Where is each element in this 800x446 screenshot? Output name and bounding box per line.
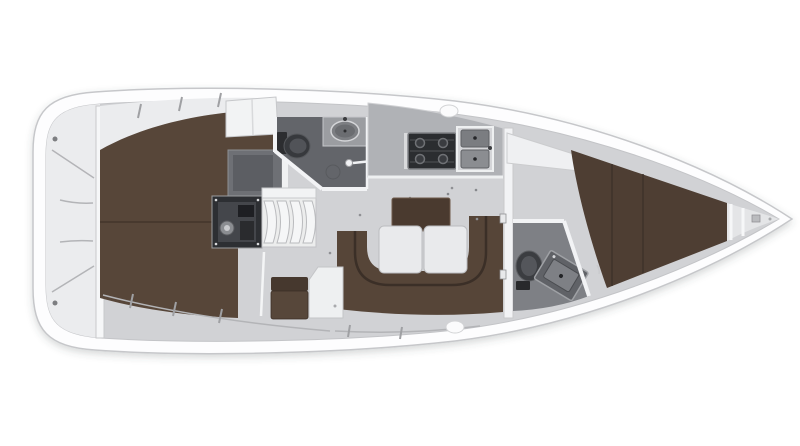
floor-dot-3 [476,218,479,221]
engine-bolt-1 [215,199,218,202]
engine-bolt-4 [257,243,260,246]
engine-bolt-2 [257,199,260,202]
galley-faucet [488,146,492,150]
stove-burner-3 [416,155,425,164]
engine-part-1 [238,205,254,217]
engine-pulley-hub [224,225,230,231]
door-hinge-bottom [500,270,506,279]
chainplate-notch-top [440,105,458,117]
door-hinge-top [500,214,506,223]
transom-storage [46,104,104,338]
nav-seat-cushion [271,291,308,319]
stove-burner-4 [439,155,448,164]
engine-compartment [212,196,262,248]
step-locker-knob [334,305,337,308]
stern-cleat-bottom [53,301,58,306]
companionway-sill [262,188,316,198]
cabinet-knob-3 [475,189,478,192]
galley-sink [457,127,493,171]
chainplate-notch-bottom [446,321,464,333]
cabinet-divider [252,99,253,135]
sink-drain-lower [473,157,477,161]
step-locker [309,267,343,318]
nav-seat [271,277,308,319]
floorplan-svg [0,0,800,446]
companionway-steps [262,188,316,247]
engine-part-2 [240,221,254,240]
windlass [752,215,760,222]
aft-head-shower [346,160,353,167]
aft-head-faucet [343,117,347,121]
aft-head-sink-drain [344,130,347,133]
floor-dot-2 [451,187,454,190]
yacht-floorplan-image [0,0,800,446]
cabinet-knob-2 [447,193,450,196]
sink-drain-upper [473,136,477,140]
wardrobe-interior [233,155,273,191]
floor-dot-4 [329,252,332,255]
table-leaf-left [379,226,422,273]
nav-seat-back [271,277,308,291]
bow-fitting [769,218,772,221]
forward-head-toilet-seat [521,256,537,276]
table-leaf-right [424,226,467,273]
stern-cleat-top [53,137,58,142]
galley-stove [404,133,456,169]
aft-head-toilet-seat [290,139,307,154]
forward-head-toilet-base [516,281,530,290]
stove-burner-2 [439,139,448,148]
stove-burner-1 [416,139,425,148]
engine-bolt-3 [215,243,218,246]
floor-dot-1 [359,214,362,217]
